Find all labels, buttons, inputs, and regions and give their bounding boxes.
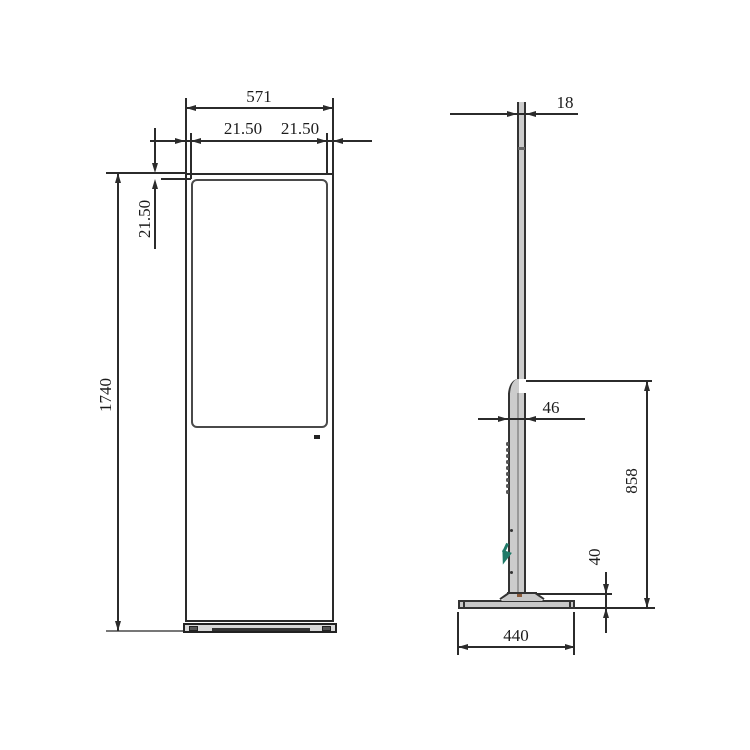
dim-1740-shaft	[117, 174, 119, 631]
vent-notch	[506, 484, 509, 488]
dim-bezel-right-label: 21.50	[274, 120, 326, 138]
screw-dot	[510, 571, 513, 574]
dim-440-line	[458, 646, 575, 648]
dim-topbezel-shaft-upper	[154, 128, 156, 165]
dim-40-shaft	[605, 572, 607, 633]
dim-bezel-ext-inner-left	[190, 133, 192, 179]
arrowhead	[603, 608, 609, 618]
arrowhead	[186, 105, 196, 111]
dim-topbezel-label: 21.50	[136, 193, 154, 245]
arrowhead	[644, 381, 650, 391]
dim-40-label: 40	[586, 543, 604, 571]
arrowhead	[507, 111, 517, 117]
screw-dot	[510, 529, 513, 532]
side-ground-line	[575, 607, 655, 609]
vent-notch	[506, 448, 509, 452]
base-joint-dot	[517, 594, 522, 597]
vent-notch	[506, 472, 509, 476]
dim-topbezel-ext	[161, 178, 191, 180]
dim-bezel-left-label: 21.50	[217, 120, 269, 138]
vent-notch	[506, 466, 509, 470]
vent-notch	[506, 478, 509, 482]
dim-46-label: 46	[536, 399, 566, 417]
dim-858-top-ext	[526, 380, 652, 382]
arrowhead	[175, 138, 185, 144]
arrowhead	[644, 598, 650, 608]
arrowhead	[565, 644, 575, 650]
side-base-hump-top	[507, 592, 537, 594]
front-screen-outline	[191, 179, 328, 428]
dim-18-label: 18	[550, 94, 580, 112]
ir-sensor-dot	[314, 435, 320, 439]
arrowhead	[323, 105, 333, 111]
arrowhead	[526, 111, 536, 117]
arrowhead	[115, 173, 121, 183]
arrowhead	[191, 138, 201, 144]
arrowhead	[333, 138, 343, 144]
front-base-vent-bar	[212, 628, 310, 631]
side-panel-upper	[517, 102, 526, 379]
dim-440-label: 440	[493, 627, 539, 645]
vent-notch	[506, 490, 509, 494]
dim-571-line	[186, 107, 333, 109]
dimension-drawing: 571 21.50 21.50 21.50 1740	[0, 0, 750, 750]
vent-notch	[506, 460, 509, 464]
side-base-cap-right	[569, 601, 571, 608]
dim-40-top-ext	[537, 593, 612, 595]
side-panel-inner-line	[517, 393, 519, 597]
dim-571-label: 571	[236, 88, 282, 106]
front-base-foot-right	[322, 626, 331, 631]
front-base-foot-left	[189, 626, 198, 631]
vent-notch	[506, 442, 509, 446]
arrowhead	[458, 644, 468, 650]
dim-topbezel-shaft-lower	[154, 189, 156, 249]
vent-notch	[506, 454, 509, 458]
side-panel-cap-joint	[518, 147, 525, 150]
dim-bezel-ext-inner-right	[326, 133, 328, 175]
dim-858-label: 858	[623, 460, 641, 502]
arrowhead	[115, 621, 121, 631]
side-base-plate	[458, 600, 575, 609]
arrowhead	[498, 416, 508, 422]
dim-1740-label: 1740	[97, 372, 115, 418]
arrowhead	[603, 584, 609, 594]
side-base-cap-left	[463, 601, 465, 608]
dim-858-shaft	[646, 382, 648, 608]
arrowhead	[526, 416, 536, 422]
arrowhead	[152, 179, 158, 189]
